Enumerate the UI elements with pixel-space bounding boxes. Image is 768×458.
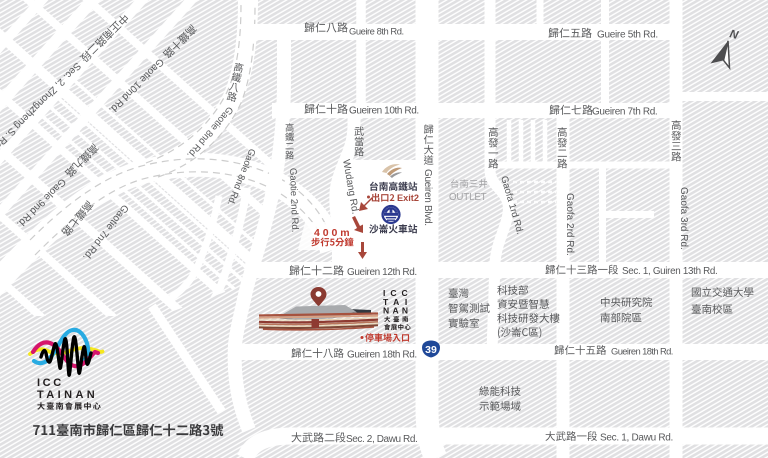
svg-text:Sec. 1, Dawu Rd.: Sec. 1, Dawu Rd. [600,433,673,444]
svg-text:Gueire 8th Rd.: Gueire 8th Rd. [349,26,404,37]
svg-text:Sec. 2, Dawu Rd.: Sec. 2, Dawu Rd. [346,434,417,445]
svg-text:Gaofa 2rd Rd.: Gaofa 2rd Rd. [564,193,575,256]
svg-text:Gueire 5th Rd.: Gueire 5th Rd. [597,30,658,41]
svg-text:Gueiren 18th Rd.: Gueiren 18th Rd. [347,350,417,361]
svg-text:ICC: ICC [37,377,64,389]
svg-text:Gaofa 3rd Rd.: Gaofa 3rd Rd. [678,187,689,250]
svg-text:Gaotie 2nd Rd.: Gaotie 2nd Rd. [287,168,300,233]
svg-text:Gueiren 10th Rd.: Gueiren 10th Rd. [349,106,419,117]
svg-text:Gueiren 18th Rd.: Gueiren 18th Rd. [611,346,673,357]
svg-text:4 0 0 m: 4 0 0 m [314,227,350,239]
svg-text:Gueiren 7th Rd.: Gueiren 7th Rd. [592,107,657,118]
svg-text:39: 39 [425,344,437,356]
svg-text:NAN: NAN [383,306,411,316]
svg-text:Gueiren 12th Rd.: Gueiren 12th Rd. [347,267,417,278]
svg-text:Gueiren Blvd.: Gueiren Blvd. [422,169,433,226]
svg-text:Sec. 1, Guiren 13th Rd.: Sec. 1, Guiren 13th Rd. [622,266,717,277]
svg-text:Exit2: Exit2 [397,193,419,203]
svg-text:OUTLET: OUTLET [449,192,487,203]
svg-text:TAINAN: TAINAN [37,389,98,401]
